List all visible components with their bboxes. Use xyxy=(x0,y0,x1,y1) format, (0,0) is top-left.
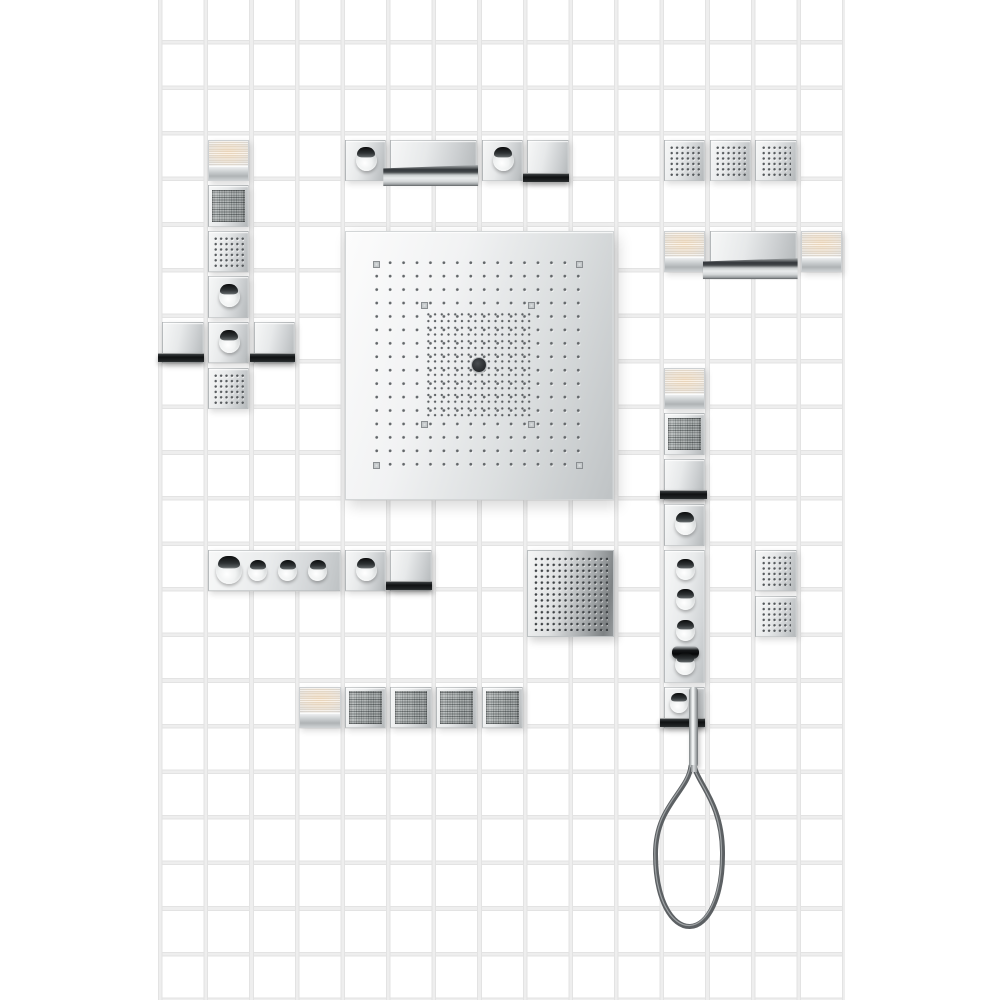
valve-handle xyxy=(278,562,297,581)
chrome-band xyxy=(209,166,249,180)
spout-module xyxy=(390,550,432,592)
frosted-glass xyxy=(665,232,705,257)
thermostat-panel-horizontal xyxy=(208,550,341,592)
spout-panel xyxy=(710,231,797,273)
ring-nozzle xyxy=(528,302,535,309)
valve-handle xyxy=(308,562,327,581)
valve-module xyxy=(664,504,706,546)
hand-shower-baton xyxy=(689,687,698,768)
valve-module xyxy=(208,322,250,364)
speaker-module xyxy=(436,687,478,729)
spray-module xyxy=(755,550,797,592)
thermostat-handle xyxy=(216,558,242,584)
valve-module xyxy=(345,140,387,182)
thermostat-handle xyxy=(675,655,695,675)
chrome-band xyxy=(665,394,705,408)
speaker-module xyxy=(390,687,432,729)
spout-shelf xyxy=(250,353,296,363)
frosted-glass xyxy=(209,141,249,166)
chrome-band xyxy=(300,713,340,727)
spout-shelf xyxy=(386,581,432,591)
valve-handle xyxy=(356,150,377,171)
frosted-glass xyxy=(665,369,705,394)
spout-shelf xyxy=(523,173,569,183)
frosted-glass xyxy=(802,232,842,257)
corner-nozzle xyxy=(576,462,583,469)
spout-shelf xyxy=(660,490,708,500)
corner-nozzle xyxy=(373,462,380,469)
spout-module xyxy=(527,140,569,182)
waterfall-shelf xyxy=(383,165,478,186)
valve-handle xyxy=(676,561,695,580)
spout-module xyxy=(162,322,204,364)
rain-showerhead xyxy=(345,231,615,501)
spray-module xyxy=(664,140,706,182)
ring-nozzle xyxy=(421,421,428,428)
valve-handle xyxy=(493,150,514,171)
frosted-glass xyxy=(300,688,340,713)
spout-module xyxy=(254,322,296,364)
speaker-module xyxy=(482,687,524,729)
light-module xyxy=(299,687,341,729)
light-module xyxy=(208,140,250,182)
valve-handle xyxy=(219,286,240,307)
shower-hose xyxy=(620,690,750,940)
valve-handle xyxy=(219,332,240,353)
valve-handle xyxy=(356,560,377,581)
spray-module xyxy=(208,368,250,410)
spout-shelf xyxy=(158,353,204,363)
waterfall-shelf xyxy=(703,258,798,279)
light-module xyxy=(801,231,843,273)
valve-handle xyxy=(676,622,695,641)
light-module xyxy=(664,231,706,273)
thermostat-panel-vertical xyxy=(664,550,706,683)
ring-nozzle xyxy=(421,302,428,309)
spray-plate xyxy=(527,550,614,637)
spray-module xyxy=(710,140,752,182)
speaker-module xyxy=(664,413,706,455)
corner-nozzle xyxy=(373,261,380,268)
chrome-band xyxy=(665,257,705,271)
valve-handle xyxy=(248,562,267,581)
spray-module xyxy=(755,140,797,182)
speaker-module xyxy=(345,687,387,729)
spout-module xyxy=(664,459,706,501)
light-module xyxy=(664,368,706,410)
chrome-band xyxy=(802,257,842,271)
valve-handle xyxy=(676,591,695,610)
ring-nozzle xyxy=(528,421,535,428)
valve-module xyxy=(208,276,250,318)
hose-connector xyxy=(691,765,698,772)
corner-nozzle xyxy=(576,261,583,268)
valve-module xyxy=(345,550,387,592)
spray-module xyxy=(755,596,797,638)
spray-module xyxy=(208,231,250,273)
valve-handle xyxy=(675,514,696,535)
product-photo xyxy=(0,0,1000,1000)
valve-module xyxy=(482,140,524,182)
speaker-module xyxy=(208,185,250,227)
spout-panel xyxy=(390,140,477,182)
